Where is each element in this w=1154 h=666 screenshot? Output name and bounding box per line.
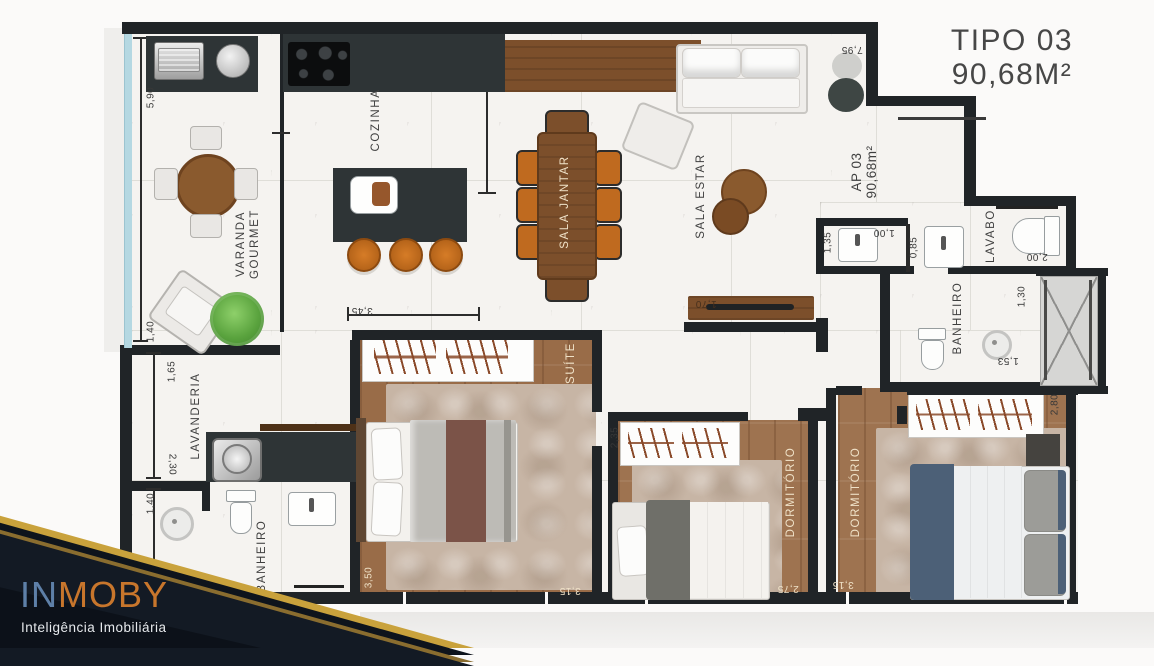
wall-tv [684,322,818,332]
suite-blanket-stripe [446,420,486,542]
wall-lavabo-top [964,196,1076,206]
dim-suite-w: 3,50 [363,561,376,595]
pillow [371,481,404,536]
unit-label: AP 03 90,68m² [849,139,879,205]
balcony-glass-rail [124,34,132,348]
dim-banheiro-suite-a: 1,30 [1016,280,1029,314]
label-banheiro-social: BANHEIRO [255,516,269,596]
hanger-rail-icon [682,428,728,458]
small-sink-faucet [941,236,946,250]
logo-brand-moby: MOBY [58,574,168,615]
unit-name: AP 03 [849,152,864,191]
dim-dorm2-d: 2,35 [609,421,622,455]
suite-toilet-tank [918,328,946,340]
suite-blanket-fold [504,420,511,542]
exterior-left-strip [104,28,126,352]
logo-brand-in: IN [20,574,58,615]
dim-cozinha-w: 3,45 [345,304,379,317]
table-chair [154,168,178,200]
label-lavanderia: LAVANDERIA [189,366,203,466]
label-sala-estar: SALA ESTAR [694,150,708,242]
bar-stool [347,238,381,272]
dim-banheiro-suite-b: 1,53 [991,354,1025,367]
title-underline [898,117,986,120]
suite-toilet-icon [921,340,944,370]
bar-stool [429,238,463,272]
bar-stool [389,238,423,272]
dim-line-laundry [153,353,155,479]
shower-drain-dot [172,519,177,524]
suite-headboard [356,418,366,542]
dim-tick [478,307,480,321]
hanger-rail-icon [374,340,436,374]
logo-brand: INMOBY [20,574,168,616]
plan-title: TIPO 03 90,68M² [930,24,1094,92]
sofa-seat [682,78,800,108]
dim-dorm2-w: 2,75 [771,582,805,595]
plan-title-model: TIPO 03 [930,24,1094,58]
cooktop-icon [288,42,350,86]
dim-line-varanda [140,38,142,342]
dim-hall-a: 1,35 [822,226,835,260]
hanger-rail-icon [916,399,970,430]
wall-dorm3-pilaster [897,406,907,424]
label-varanda-line1: VARANDA [234,211,248,277]
label-sala-jantar: SALA JANTAR [558,152,572,252]
pillow [371,427,404,480]
towel-bar [294,585,344,588]
wall-lavabo-right [1066,196,1076,272]
wall-topright-step [866,96,976,106]
hall-sink-faucet [855,234,860,246]
shaft-rail [1044,280,1047,380]
bath-sink-faucet [309,498,314,512]
lavabo-toilet-icon [1012,218,1048,254]
dining-chair [594,150,622,186]
logo-tagline: Inteligência Imobiliária [21,620,167,635]
hanger-rail-icon [628,428,674,458]
label-cozinha: COZINHA [369,80,383,160]
sofa-cushion [682,48,741,78]
side-table-light [832,52,862,80]
label-lavabo: LAVABO [984,204,998,268]
pillow-blue-strip [1058,534,1066,594]
shower-drain-icon [160,507,194,541]
floorplan-page: { "title": { "model": "TIPO 03", "area":… [0,0,1154,648]
label-dormitorio-2: DORMITÓRIO [784,444,798,540]
kitchen-counter-wood [505,40,701,92]
dim-tick [272,132,290,134]
island-sink-basin [372,182,390,206]
dim-dorm3-w: 3,15 [826,578,860,591]
wall-banheiro-suite-left [880,274,890,392]
wall-dorm2-top-a [608,412,748,421]
washer-door [222,444,252,474]
dim-banheiro-social-w: 1,40 [145,487,158,521]
wall-right-upper [964,96,976,202]
dining-chair [594,224,622,260]
wall-suite-right-low [592,446,602,602]
dim-dorm3-d: 2,80 [1049,388,1062,422]
dim-tick [146,477,161,479]
side-table-dark [828,78,864,112]
wall-dorm23-b [826,388,836,602]
dim-varanda-h: 5,90 [145,81,158,115]
sofa-cushion [741,48,800,78]
toilet-icon [230,502,252,534]
label-varanda-line2: GOURMET [248,209,262,279]
plan-title-area: 90,68M² [930,58,1094,92]
dorm2-sheet [690,502,768,598]
label-banheiro-suite: BANHEIRO [951,278,965,358]
pillow-blue-strip [1058,470,1066,530]
wall-notch [846,592,849,604]
wall-hall-bottom-a [816,266,914,274]
dim-tick [146,352,161,354]
dining-chair [594,187,622,223]
table-chair [234,168,258,200]
label-dormitorio-3: DORMITÓRIO [849,444,863,540]
dim-tv-wall: 1,70 [689,297,723,310]
wall-suite-right-up [592,330,602,412]
table-chair [190,214,222,238]
wall-notch [545,592,548,604]
dorm2-duvet [646,500,690,600]
laundry-shelf [260,424,360,431]
toilet-tank [226,490,256,502]
table-chair [190,126,222,150]
plant-icon [210,292,264,346]
dim-tick [478,192,496,194]
dorm3-sheet [954,466,1022,598]
bottom-shadow [360,612,1154,648]
shaft-rail [1089,280,1092,380]
dim-sala-w: 7,95 [835,43,869,56]
dim-lavanderia-w: 2,30 [166,448,179,482]
hanger-rail-icon [978,399,1032,430]
wall-dorm3-top-stub [836,386,862,395]
dim-lavanderia-h: 1,65 [166,355,179,389]
dim-suite-d: 3,15 [553,584,587,597]
shower-drain-dot [992,340,997,345]
wall-top [122,22,878,34]
coffee-table-small [712,198,749,235]
wall-shaft-right [1098,268,1106,394]
label-suite: SUÍTE [564,338,578,388]
grill-appliance-lines [158,48,200,72]
wall-bath-stub [202,481,210,511]
wall-topright-vert [866,22,878,104]
dim-varanda-w: 1,40 [145,315,158,349]
label-varanda-gourmet: VARANDA GOURMET [234,199,262,289]
wall-notch [403,592,406,604]
dim-lavabo-w: 2,00 [1020,250,1054,263]
dorm3-duvet-blue [910,464,954,600]
hanger-rail-icon [446,340,508,374]
dim-hall-b: 1,00 [867,226,901,239]
unit-area: 90,68m² [864,145,879,198]
dim-hall-c: 0,85 [908,231,921,265]
round-table [176,154,240,218]
lavabo-towel-bar [996,206,1058,209]
wall-dorm23-a [808,420,818,602]
pillow [616,525,649,577]
balcony-sink-icon [216,44,250,78]
